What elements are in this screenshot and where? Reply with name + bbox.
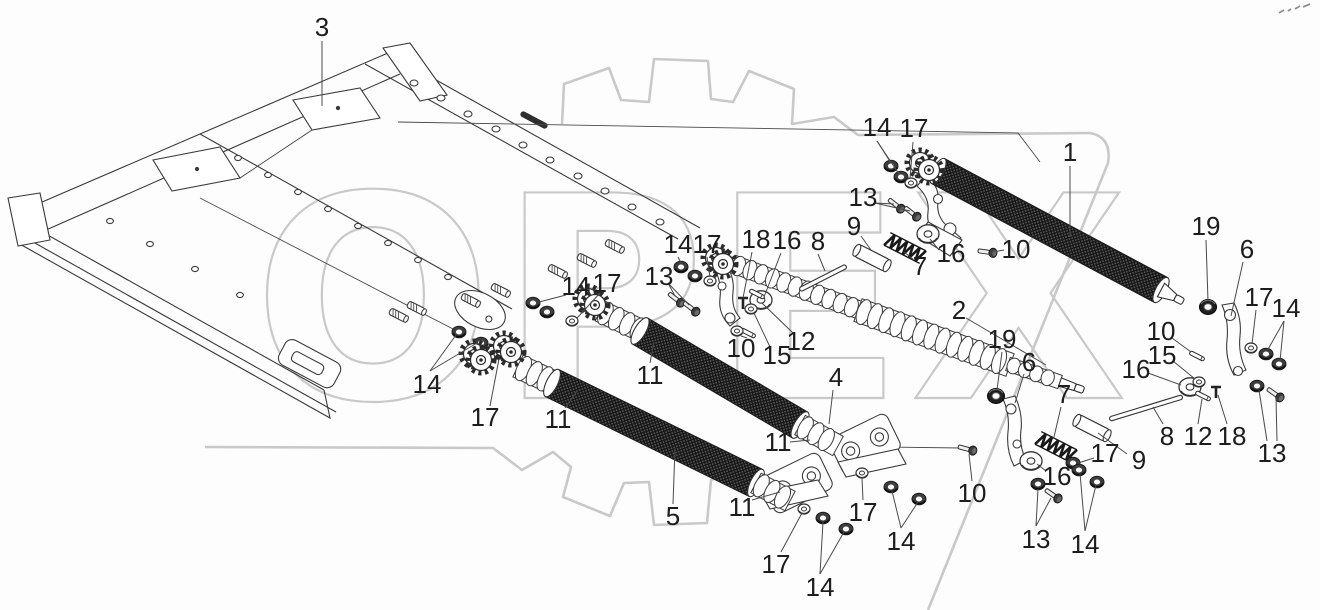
- callout-label-18: 18: [1218, 421, 1247, 451]
- callout-label-7: 7: [913, 251, 927, 281]
- part-washer: [905, 178, 917, 188]
- leader-line: [1259, 390, 1267, 441]
- corner-marks: [1279, 4, 1310, 13]
- leader-line: [1218, 395, 1227, 424]
- part-nut: [1090, 476, 1104, 488]
- callout-label-14: 14: [863, 112, 892, 142]
- part-washer: [856, 468, 868, 478]
- part-nut: [884, 481, 898, 493]
- leader-line: [892, 491, 901, 528]
- callout-label-17: 17: [471, 402, 500, 432]
- callout-label-6: 6: [1022, 347, 1036, 377]
- leader-line: [1036, 489, 1038, 526]
- callout-label-14: 14: [664, 229, 693, 259]
- callout-label-13: 13: [1258, 438, 1287, 468]
- callout-label-16: 16: [1043, 461, 1072, 491]
- part-pin: [1195, 391, 1211, 402]
- callout-label-17: 17: [593, 268, 622, 298]
- part-tpin: [1211, 387, 1221, 398]
- leader-line: [820, 522, 823, 574]
- part-bolt: [1265, 385, 1286, 403]
- callout-label-10: 10: [727, 333, 756, 363]
- callout-label-8: 8: [1160, 421, 1174, 451]
- part-nut: [912, 493, 926, 505]
- callout-label-14: 14: [1272, 293, 1301, 323]
- part-washer: [745, 304, 757, 314]
- callout-label-16: 16: [773, 225, 802, 255]
- callout-label-15: 15: [763, 340, 792, 370]
- callout-label-13: 13: [849, 182, 878, 212]
- corner-speck: [1295, 6, 1300, 9]
- part-nut: [1072, 464, 1086, 476]
- part-nut: [452, 326, 466, 338]
- callout-label-10: 10: [958, 478, 987, 508]
- leader-line: [820, 532, 844, 574]
- part-washerBig: [1020, 452, 1042, 470]
- callout-label-17: 17: [900, 113, 929, 143]
- callout-label-6: 6: [1240, 234, 1254, 264]
- callout-label-14: 14: [1071, 529, 1100, 559]
- callout-label-17: 17: [762, 549, 791, 579]
- part-washer: [704, 276, 716, 286]
- callout-label-13: 13: [1022, 524, 1051, 554]
- part-nut: [540, 306, 554, 318]
- callout-label-14: 14: [413, 369, 442, 399]
- callout-label-17: 17: [693, 229, 722, 259]
- callout-label-17: 17: [849, 497, 878, 527]
- callout-label-19: 19: [1192, 211, 1221, 241]
- callout-label-7: 7: [1057, 379, 1071, 409]
- leader-line: [1231, 262, 1243, 316]
- callout-label-11: 11: [765, 427, 792, 457]
- part-nut: [526, 297, 540, 309]
- watermark-text: ОРЕХ: [253, 136, 1133, 465]
- exploded-parts-diagram: ОРЕХ: [0, 0, 1320, 610]
- part-bearing: [988, 389, 1005, 404]
- callout-label-11: 11: [729, 492, 756, 522]
- callout-label-19: 19: [988, 324, 1017, 354]
- callout-label-18: 18: [742, 224, 771, 254]
- part-nut: [1259, 348, 1273, 360]
- callout-label-15: 15: [1148, 340, 1177, 370]
- part-bearing: [1200, 300, 1217, 315]
- arm-roller1-right-6: [1222, 303, 1246, 376]
- callout-label-13: 13: [645, 261, 674, 291]
- leader-line: [781, 513, 802, 552]
- corner-speck: [1303, 4, 1310, 7]
- callout-label-9: 9: [1132, 445, 1146, 475]
- corner-speck: [1288, 9, 1291, 11]
- callout-label-14: 14: [806, 572, 835, 602]
- leader-line: [1252, 310, 1256, 344]
- leader-line: [901, 502, 918, 528]
- callout-label-17: 17: [1245, 282, 1274, 312]
- leader-line: [1148, 373, 1181, 385]
- leader-line: [1036, 498, 1051, 526]
- part-washer: [566, 316, 578, 326]
- callout-label-14: 14: [562, 271, 591, 301]
- leader-line: [1085, 485, 1096, 531]
- leader-line: [1206, 240, 1208, 301]
- part-pin: [1189, 351, 1205, 362]
- part-washer: [798, 504, 810, 514]
- callout-label-8: 8: [811, 226, 825, 256]
- part-washer: [1245, 343, 1257, 353]
- callout-label-4: 4: [829, 362, 843, 392]
- callout-label-16: 16: [937, 238, 966, 268]
- callout-label-9: 9: [847, 211, 861, 241]
- part-nut: [1272, 358, 1286, 370]
- callout-label-1: 1: [1063, 137, 1077, 167]
- callout-label-16: 16: [1122, 354, 1151, 384]
- corner-speck: [1279, 10, 1284, 13]
- callout-label-12: 12: [1184, 421, 1213, 451]
- callout-label-11: 11: [545, 404, 572, 434]
- leader-line: [1276, 398, 1277, 441]
- callout-label-11: 11: [637, 360, 664, 390]
- callout-label-14: 14: [887, 526, 916, 556]
- callout-label-2: 2: [952, 295, 966, 325]
- callout-label-5: 5: [666, 501, 680, 531]
- parts-diagram-page: ОРЕХ: [0, 0, 1320, 610]
- leader-line: [1080, 473, 1085, 531]
- callout-label-3: 3: [315, 12, 329, 42]
- part-nut: [688, 270, 702, 282]
- part-nut: [1250, 380, 1264, 392]
- callout-label-17: 17: [1091, 438, 1120, 468]
- callout-label-10: 10: [1002, 234, 1031, 264]
